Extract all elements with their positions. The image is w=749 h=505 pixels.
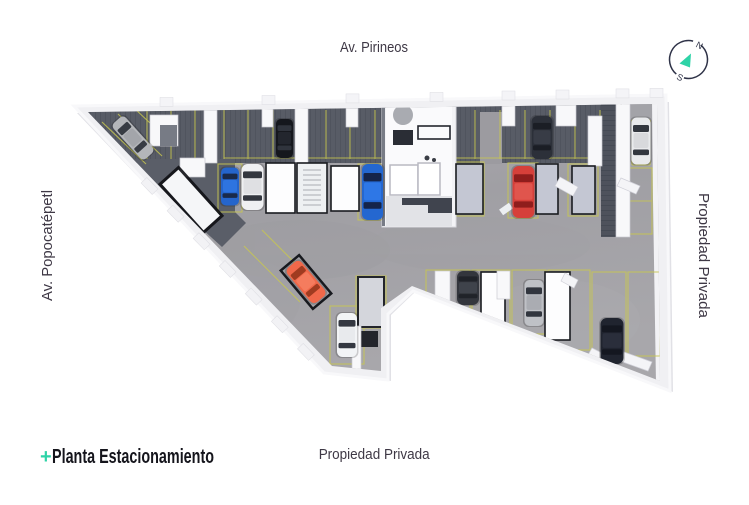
svg-text:+: +: [40, 446, 52, 468]
svg-text:Propiedad Privada: Propiedad Privada: [319, 446, 431, 463]
svg-text:Propiedad Privada: Propiedad Privada: [695, 193, 712, 319]
svg-text:Av. Pirineos: Av. Pirineos: [340, 39, 408, 56]
svg-text:Av. Popocatépetl: Av. Popocatépetl: [39, 190, 56, 301]
svg-text:Planta Estacionamiento: Planta Estacionamiento: [52, 446, 214, 468]
